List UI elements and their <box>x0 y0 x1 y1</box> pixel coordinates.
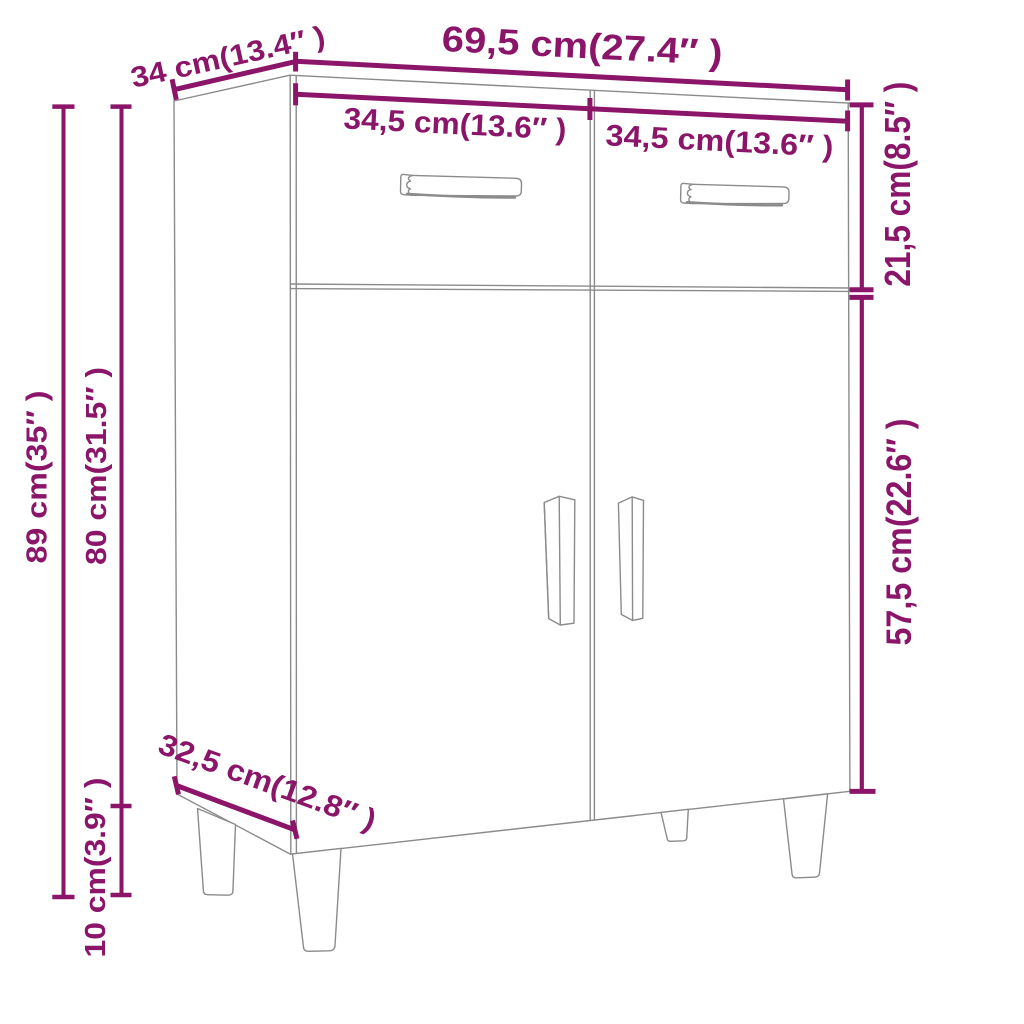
svg-text:80 cm(31.5″ ): 80 cm(31.5″ ) <box>81 367 113 565</box>
svg-text:21,5 cm(8.5″ ): 21,5 cm(8.5″ ) <box>877 82 918 287</box>
svg-text:89 cm(35″ ): 89 cm(35″ ) <box>21 391 53 564</box>
svg-text:57,5 cm(22.6″ ): 57,5 cm(22.6″ ) <box>880 419 919 646</box>
svg-text:10 cm(3.9″ ): 10 cm(3.9″ ) <box>80 778 112 958</box>
